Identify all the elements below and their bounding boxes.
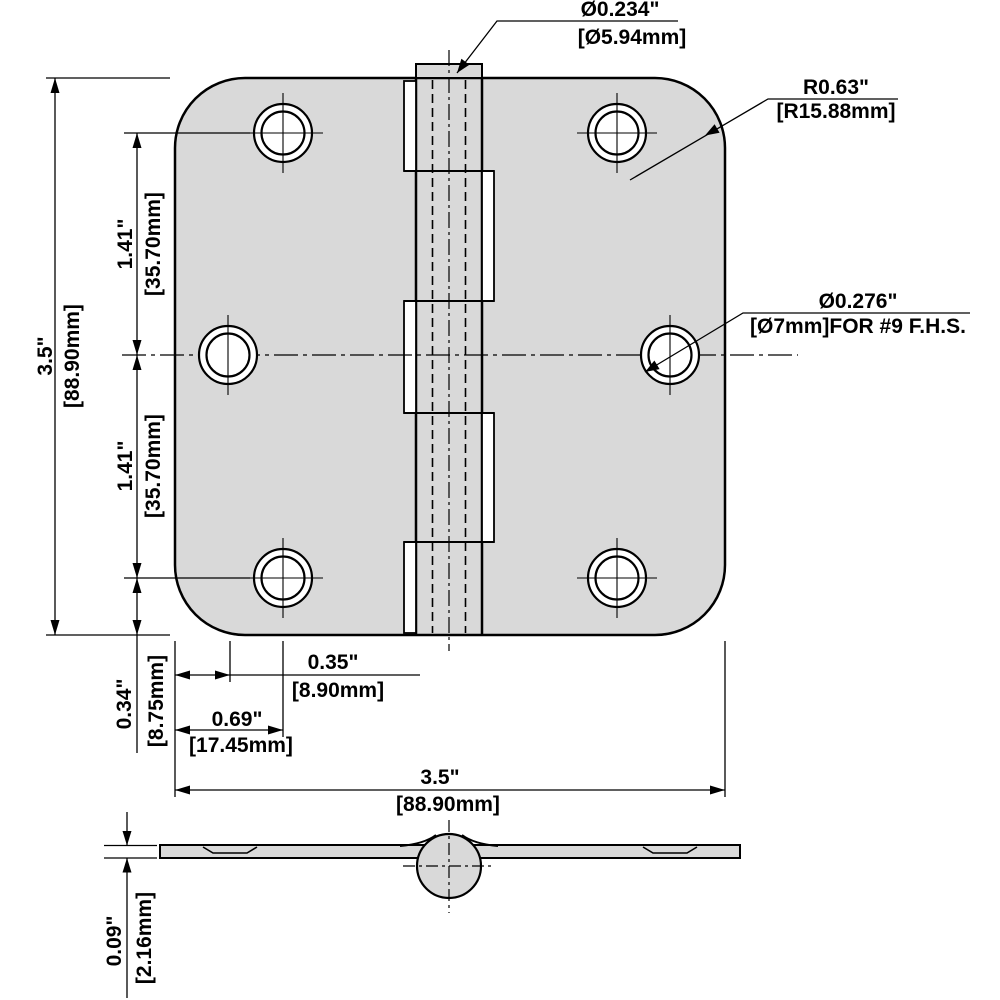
- label-overall-height-mm: [88.90mm]: [61, 304, 84, 408]
- hinge-technical-drawing: Ø0.234" [Ø5.94mm] R0.63" [R15.88mm] Ø0.2…: [0, 0, 1000, 1000]
- label-corner-radius-mm: [R15.88mm]: [776, 100, 895, 123]
- label-pin-diameter-inch: Ø0.234": [581, 0, 660, 21]
- knuckle-notch: [482, 171, 494, 301]
- label-edge-to-corner-holes-mm: [17.45mm]: [189, 734, 293, 757]
- label-edge-to-corner-holes-inch: 0.69": [212, 708, 263, 731]
- label-edge-to-hole-vertical-mm: [8.75mm]: [145, 655, 168, 747]
- label-hole-spacing-upper-inch: 1.41": [114, 219, 137, 270]
- knuckle-notch: [404, 542, 416, 633]
- label-leaf-thickness-mm: [2.16mm]: [133, 892, 156, 984]
- label-overall-width-inch: 3.5": [420, 766, 459, 789]
- label-edge-to-middle-hole-inch: 0.35": [308, 651, 359, 674]
- knuckle-notch: [404, 301, 416, 413]
- label-screw-hole-mm: [Ø7mm]FOR #9 F.H.S.: [750, 315, 966, 338]
- label-screw-hole-inch: Ø0.276": [819, 290, 898, 313]
- label-corner-radius-inch: R0.63": [803, 76, 869, 99]
- knuckle-notch: [482, 413, 494, 542]
- knuckle-notch: [404, 81, 416, 171]
- label-leaf-thickness-inch: 0.09": [103, 916, 126, 967]
- label-hole-spacing-lower-inch: 1.41": [114, 441, 137, 492]
- label-edge-to-hole-vertical-inch: 0.34": [113, 679, 136, 730]
- label-overall-height-inch: 3.5": [34, 336, 57, 375]
- label-hole-spacing-lower-mm: [35.70mm]: [142, 414, 165, 518]
- label-overall-width-mm: [88.90mm]: [396, 793, 500, 816]
- label-hole-spacing-upper-mm: [35.70mm]: [142, 192, 165, 296]
- label-edge-to-middle-hole-mm: [8.90mm]: [292, 679, 384, 702]
- label-pin-diameter-mm: [Ø5.94mm]: [578, 26, 687, 49]
- drawing-canvas: Ø0.234" [Ø5.94mm] R0.63" [R15.88mm] Ø0.2…: [0, 0, 1000, 1000]
